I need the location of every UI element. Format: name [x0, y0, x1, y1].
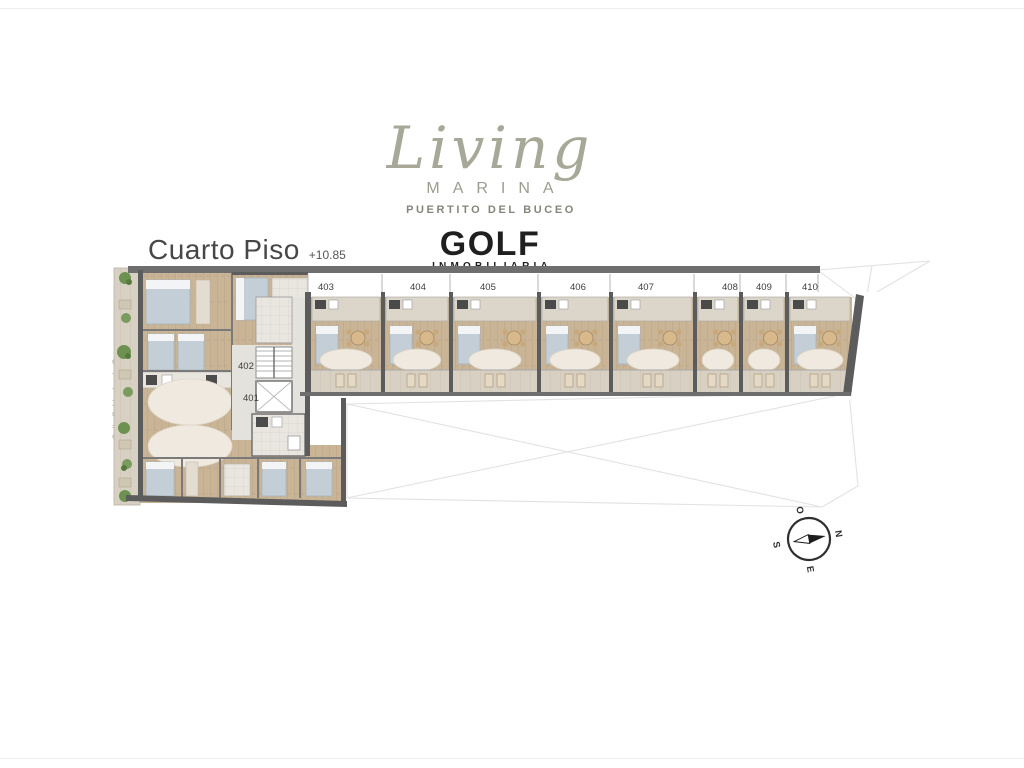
compass-south-label: S	[770, 541, 782, 549]
compass-north-label: N	[832, 530, 844, 539]
unit-label: 406	[570, 282, 586, 293]
unit-label: 405	[480, 282, 496, 293]
shaft-lines	[308, 274, 818, 292]
core-bathrooms	[252, 414, 305, 456]
unit-label: 409	[756, 282, 772, 293]
unit-406	[537, 292, 610, 396]
unit-410	[785, 292, 852, 396]
unit-403	[307, 292, 382, 396]
unit-408	[693, 292, 740, 396]
unit-label: 404	[410, 282, 426, 293]
top-units-row	[307, 292, 852, 396]
unit-label: 403	[318, 282, 334, 293]
unit-label: 402	[238, 361, 254, 372]
bed-pillows	[146, 280, 190, 289]
elevator	[256, 381, 292, 412]
living-rug	[148, 379, 232, 425]
service-room	[256, 297, 292, 343]
compass-east-label: E	[804, 565, 816, 573]
compass-icon: N E S O	[765, 500, 849, 579]
stairs	[256, 347, 292, 378]
unit-409	[739, 292, 786, 396]
floor-plan: 403 404 405 406 407 408 409 410 402 401 …	[0, 0, 1024, 768]
unit-label: 408	[722, 282, 738, 293]
compass-west-label: O	[793, 506, 805, 515]
street-balcony	[114, 268, 140, 505]
unit-label: 407	[638, 282, 654, 293]
page: { "brand": { "name_script": "Living", "n…	[0, 0, 1024, 768]
unit-404	[381, 292, 450, 396]
unit-407	[609, 292, 694, 396]
unit-405	[449, 292, 538, 396]
wardrobe	[196, 280, 210, 324]
unit-label: 401	[243, 393, 259, 404]
unit-label: 410	[802, 282, 818, 293]
